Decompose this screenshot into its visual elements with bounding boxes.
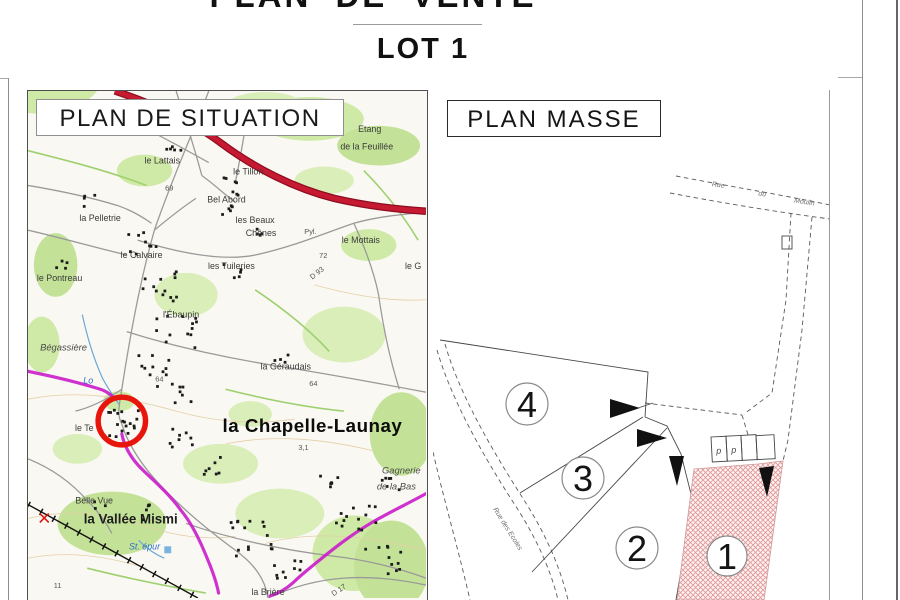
map-label-les-tuileries: les Tuileries [208, 261, 255, 271]
parking-label-p2: p [730, 445, 737, 455]
map-label-la-geraudais: la Géraudais [261, 361, 312, 371]
map-label-feuillee: de la Feuillée [340, 142, 393, 152]
map-label-64b: 64 [155, 374, 163, 383]
map-label-begassiere: Bégassière [40, 341, 87, 352]
lot4-bubble: 4 [506, 383, 548, 425]
frame-line-inner-right [862, 0, 863, 600]
title-divider [353, 24, 482, 25]
masse-street-rue-du-moulin: Rue du Moulin [670, 176, 830, 219]
map-label-st-epur: St. épur [129, 541, 161, 551]
map-label-le-te: le Te [75, 423, 94, 433]
map-label-72: 72 [319, 251, 327, 260]
street-label-du: du [758, 190, 767, 198]
map-label-la-pelletrie: la Pelletrie [79, 213, 120, 223]
map-label-lo: Lo [83, 375, 93, 385]
map-label-chenes: Chênes [246, 228, 277, 238]
frame-line-left [8, 78, 9, 600]
map-label-belle-vue: Belle Vue [75, 496, 113, 506]
lot-title: LOT 1 [323, 33, 523, 66]
lot2-number: 2 [627, 528, 647, 569]
lot3-number: 3 [573, 458, 593, 499]
map-label-69: 69 [165, 183, 173, 192]
street-label-left: Rue des Ecoles [491, 507, 523, 553]
map-label-11: 11 [54, 581, 62, 590]
map-label-la-vallee-mismi: la Vallée Mismi [84, 511, 178, 526]
map-label-le-calvaire: le Calvaire [121, 250, 163, 260]
map-label-64a: 64 [309, 379, 317, 388]
map-label-bel-abord: Bel Abord [207, 194, 246, 204]
street-label-rue: Rue [711, 181, 725, 190]
masse-plan-canvas: Rue du Moulin Rue des Ecoles p p [433, 90, 830, 600]
map-label-le-tillon: le Tillon [233, 166, 263, 176]
map-label-de-la-bas: de la Bas [377, 481, 416, 492]
masse-parking: p p [711, 434, 775, 462]
map-label-le-pontreau: le Pontreau [37, 273, 82, 283]
map-label-d93: D 93 [308, 265, 326, 282]
masse-street-left: Rue des Ecoles [433, 344, 568, 600]
lot1-bubble: 1 [707, 536, 747, 577]
situation-map: Etang de la Feuillée le Lattais le Tillo… [27, 90, 428, 600]
street-label-moulin: Moulin [794, 197, 816, 207]
map-label-etang: Etang [358, 124, 381, 134]
map-label-le-lattais: le Lattais [145, 156, 181, 166]
map-label-3-1: 3,1 [298, 443, 308, 452]
lot3-bubble: 3 [562, 457, 604, 499]
lot4-number: 4 [517, 384, 537, 425]
map-label-le-g: le G [405, 261, 421, 271]
masse-panel-title: PLAN MASSE [447, 100, 661, 137]
map-label-pyl: Pyl. [304, 227, 316, 236]
frame-line-left-top [0, 78, 8, 79]
parking-label-p1: p [715, 445, 722, 455]
map-label-la-briere: la Brière [251, 587, 284, 597]
masse-small-structure [782, 236, 792, 249]
situation-panel-title: PLAN DE SITUATION [36, 99, 344, 136]
frame-line-outer-right [896, 0, 898, 600]
arrow-lot4 [610, 399, 640, 418]
lot2-bubble: 2 [616, 527, 658, 569]
map-pond [164, 546, 171, 553]
map-label-le-mottais: le Mottais [342, 235, 381, 245]
map-label-les-beaux: les Beaux [236, 215, 276, 225]
page-title: PLAN DE VENTE [173, 0, 573, 15]
frame-line-right-top [838, 77, 862, 78]
map-label-ebaupin: l'Ébaupin [163, 310, 199, 320]
masse-access-lane [645, 213, 812, 461]
map-label-gagnerie: Gagnerie [382, 465, 421, 476]
map-label-la-chapelle-launay: la Chapelle-Launay [223, 415, 403, 436]
arrow-lot2 [669, 456, 684, 486]
lot1-number: 1 [717, 536, 737, 577]
situation-map-canvas: Etang de la Feuillée le Lattais le Tillo… [28, 91, 426, 598]
